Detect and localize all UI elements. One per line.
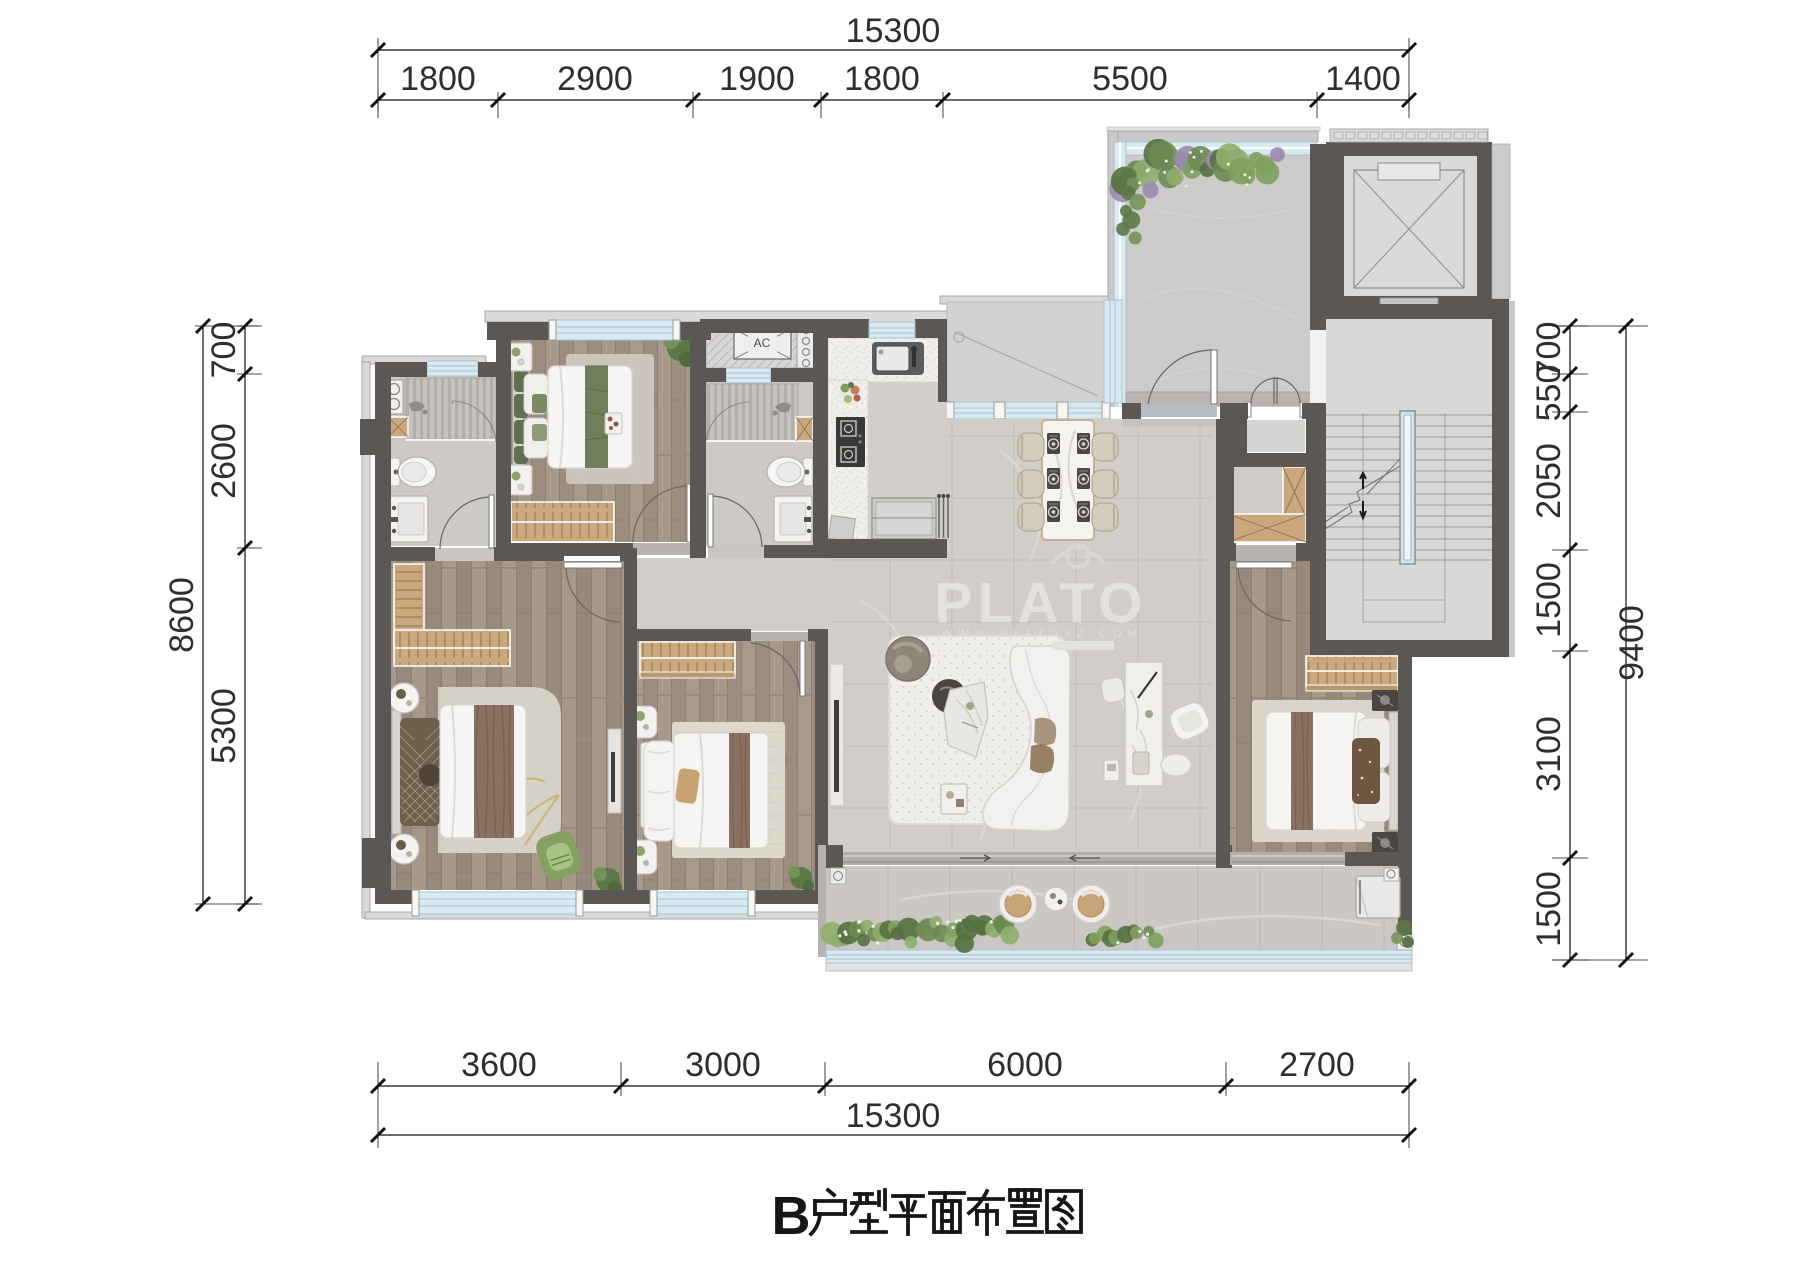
svg-text:2900: 2900 (557, 60, 633, 98)
svg-text:1400: 1400 (1325, 60, 1401, 98)
svg-text:3600: 3600 (461, 1046, 537, 1084)
svg-text:2700: 2700 (1279, 1046, 1355, 1084)
svg-text:1900: 1900 (719, 60, 795, 98)
svg-text:2050: 2050 (1530, 443, 1568, 519)
svg-text:5500: 5500 (1092, 60, 1168, 98)
svg-text:15300: 15300 (846, 12, 941, 50)
svg-text:PLATO: PLATO (935, 571, 1148, 635)
svg-text:1500: 1500 (1530, 562, 1568, 638)
svg-text:550: 550 (1530, 365, 1568, 422)
svg-text:8600: 8600 (163, 577, 201, 653)
svg-text:9400: 9400 (1613, 605, 1651, 681)
svg-text:5300: 5300 (205, 688, 243, 764)
svg-text:1500: 1500 (1530, 871, 1568, 947)
svg-text:3100: 3100 (1530, 716, 1568, 792)
svg-text:W W W . P L A T O Y Z . C O M: W W W . P L A T O Y Z . C O M (942, 628, 1139, 640)
svg-text:1800: 1800 (400, 60, 476, 98)
svg-text:AC: AC (754, 336, 771, 350)
svg-text:B: B (772, 1186, 811, 1246)
svg-text:700: 700 (205, 322, 243, 379)
svg-text:15300: 15300 (846, 1097, 941, 1135)
svg-text:3000: 3000 (685, 1046, 761, 1084)
svg-text:1800: 1800 (844, 60, 920, 98)
svg-text:6000: 6000 (987, 1046, 1063, 1084)
svg-text:2600: 2600 (205, 423, 243, 499)
